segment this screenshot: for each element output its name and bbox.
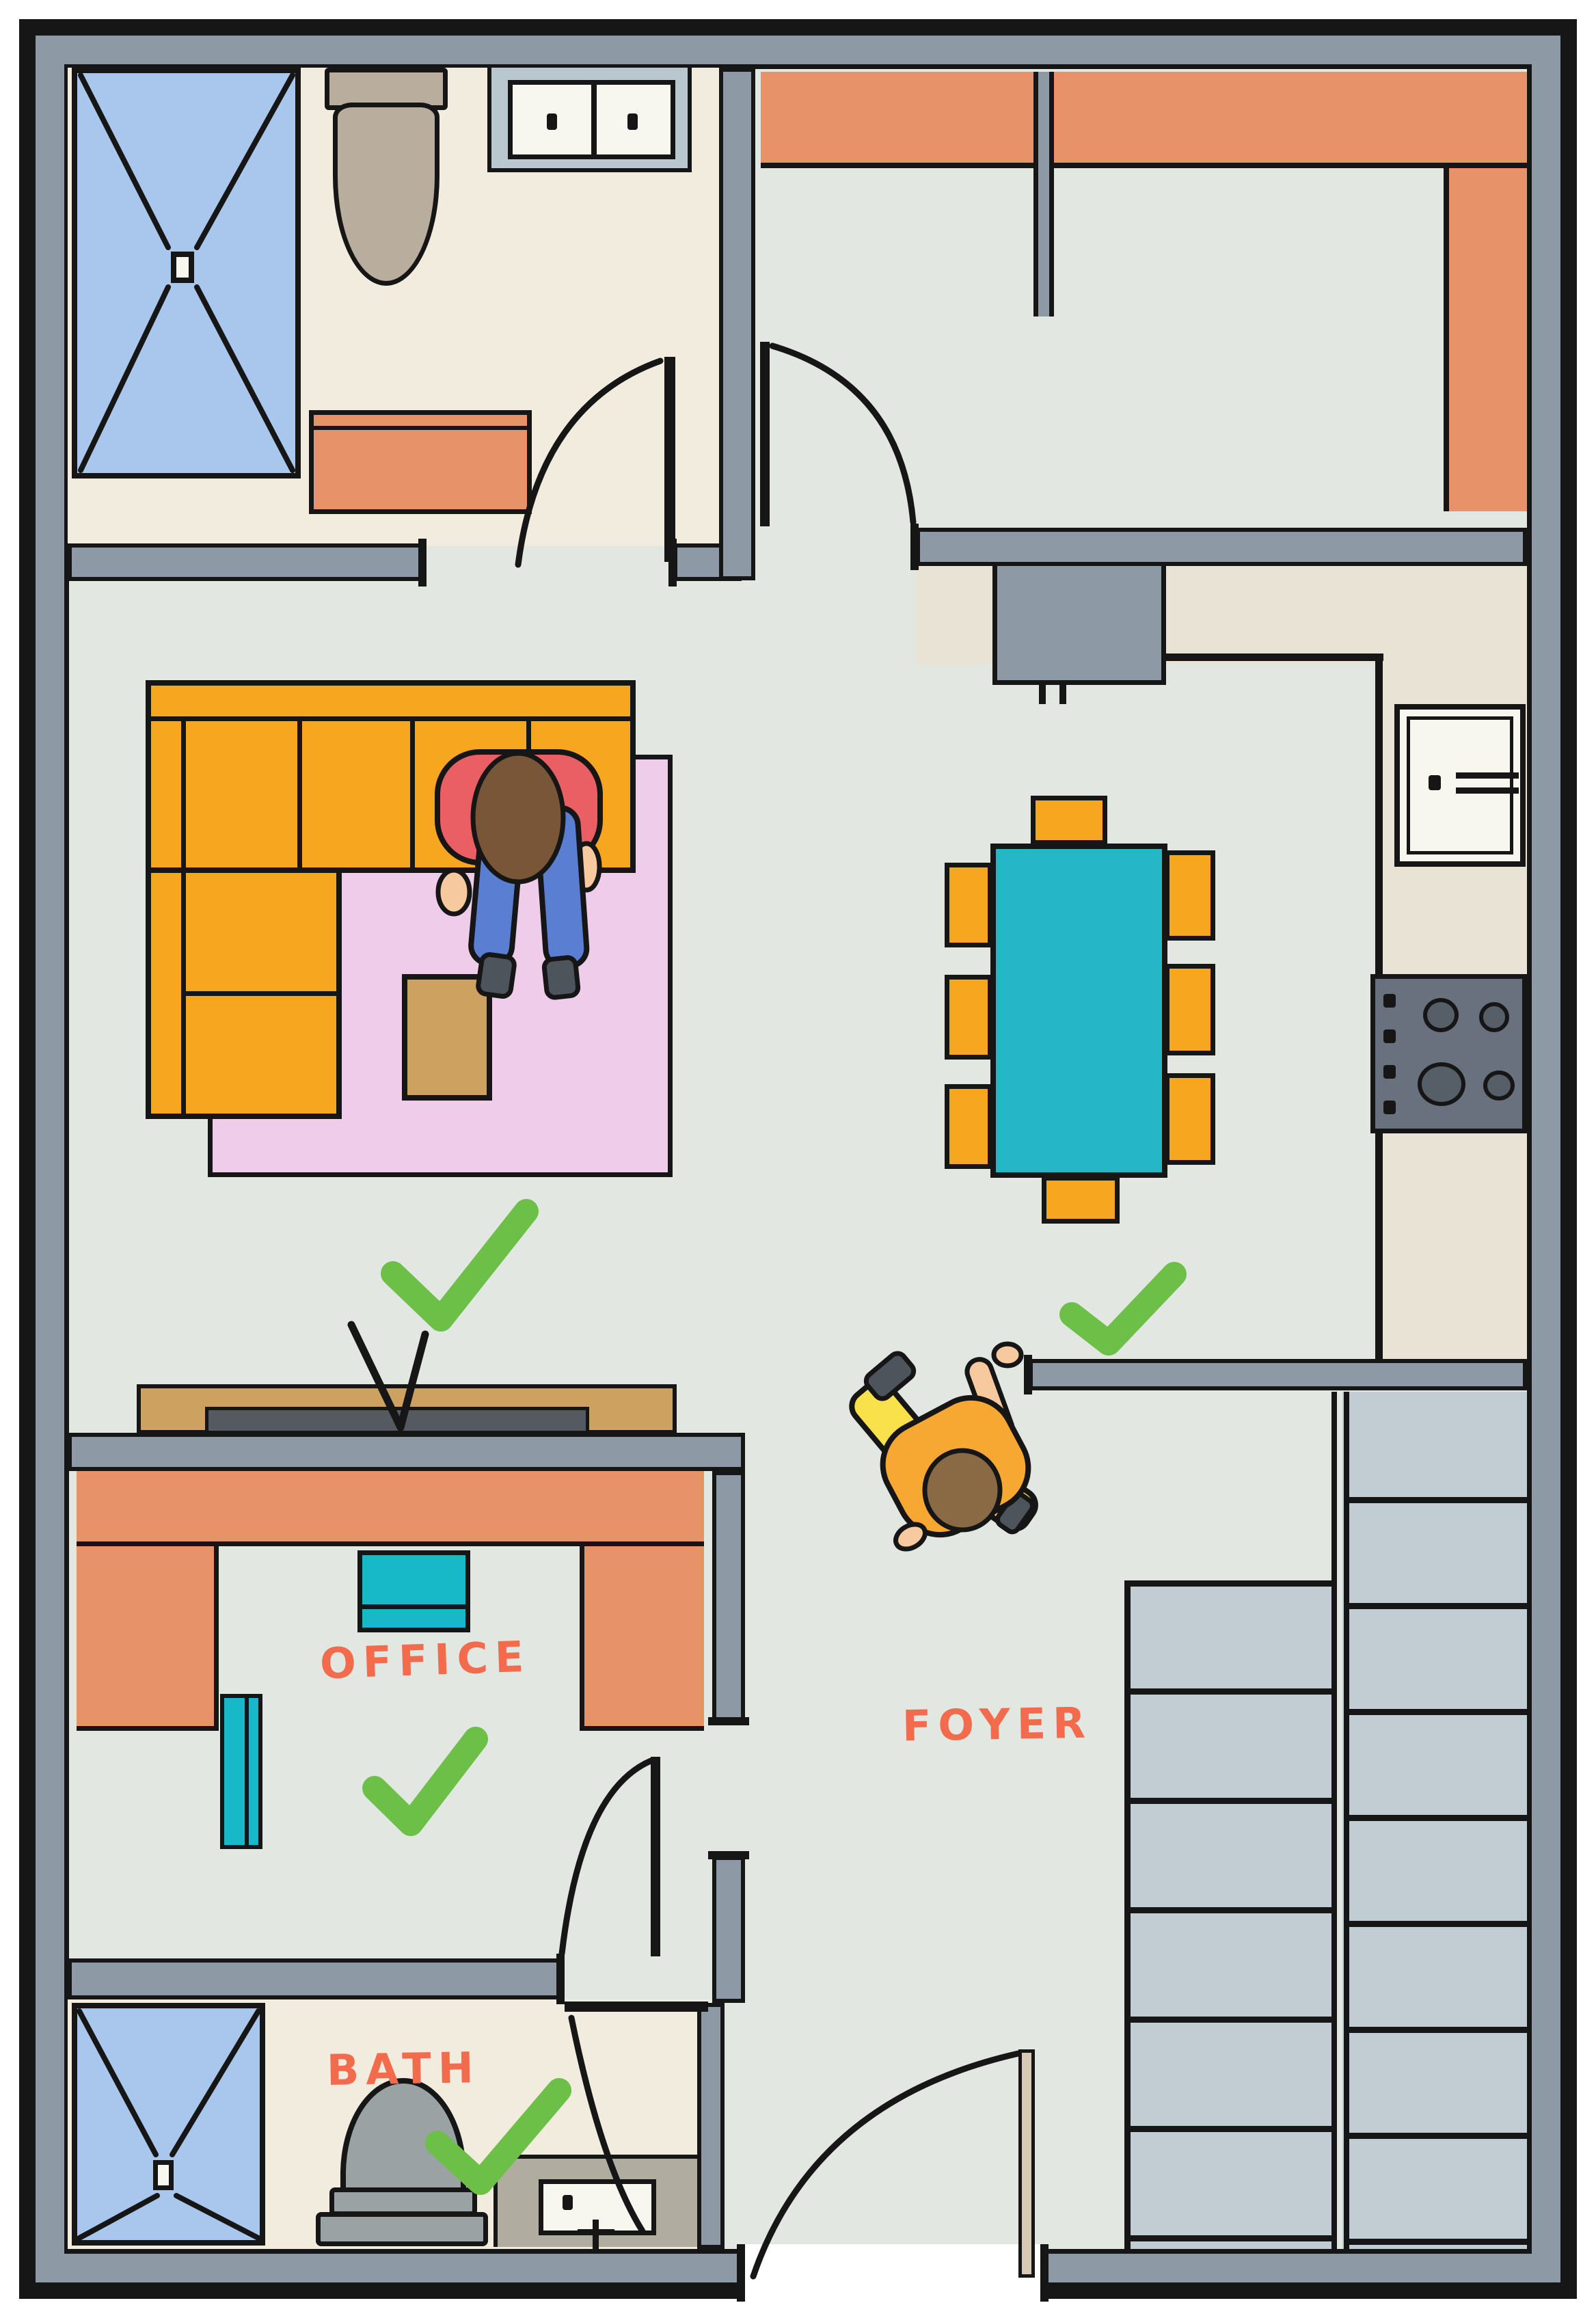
toilet-tank-bottom [316, 2212, 488, 2246]
shower-drain [171, 252, 194, 283]
dining-chair [1042, 1176, 1120, 1224]
front-door-leaf [1018, 2049, 1035, 2278]
stove-burner [1418, 1062, 1465, 1106]
sofa-cushion-divider [297, 716, 302, 868]
sink-drain [627, 113, 638, 130]
stair-tread [1131, 2017, 1331, 2023]
office-side-chair [220, 1694, 262, 1849]
sofa-arm-line [181, 716, 186, 1114]
sink-drain [1429, 775, 1441, 790]
wall-cap [556, 1954, 565, 2004]
dining-chair [1165, 1073, 1215, 1165]
stove-knob [1383, 994, 1396, 1008]
door-jamb [1040, 2244, 1049, 2302]
vanity-double-sink [508, 80, 675, 159]
refrigerator-handle [1059, 684, 1066, 704]
bath-dresser [309, 410, 532, 514]
wall-closetroom-south [916, 528, 1527, 566]
stairs-divider-a [1331, 1392, 1337, 2249]
dining-chair [1165, 964, 1215, 1055]
bathroom-door-leaf [664, 357, 675, 562]
stairs-divider-b [1344, 1392, 1349, 2249]
stair-tread [1131, 1907, 1331, 1913]
stair-tread [1349, 1603, 1527, 1609]
stair-tread [1349, 1497, 1527, 1503]
stair-tread [1349, 1921, 1527, 1927]
stairs-left-top-edge [1124, 1580, 1333, 1587]
dining-chair [945, 975, 992, 1060]
wall-bath-east [697, 2003, 725, 2249]
front-door-opening [742, 2244, 1047, 2318]
sink-divider [591, 85, 597, 154]
stove-burner [1483, 1070, 1515, 1101]
office-desk-top [77, 1471, 704, 1546]
sink-faucet [1456, 772, 1519, 779]
shower-drain [153, 2160, 174, 2190]
closet-right-band [1444, 168, 1527, 511]
bath-label: BATH [326, 2043, 481, 2095]
kitchen-sink [1394, 704, 1526, 867]
counter-edge-horizontal [1162, 653, 1383, 661]
floor-plan: OFFICE BATH FOYER [0, 0, 1596, 2318]
stair-tread [1131, 2235, 1331, 2241]
stair-tread [1131, 1688, 1331, 1695]
stove-burner [1423, 998, 1459, 1032]
office-desk-right [580, 1546, 704, 1731]
tv [205, 1407, 589, 1434]
chair-line [362, 1604, 465, 1609]
wall-bathroom-east [719, 68, 755, 580]
wall-cap [910, 524, 919, 570]
office-label: OFFICE [319, 1632, 532, 1689]
dining-chair [1165, 850, 1215, 941]
dining-chair [945, 1084, 992, 1169]
wall-cap [418, 539, 427, 587]
kitchen-sink-inner [1407, 716, 1513, 854]
sofa-cushion-divider [181, 991, 337, 996]
stair-tread [1131, 2126, 1331, 2132]
sofa-cushion-divider [410, 716, 415, 868]
wall-cap [708, 1717, 749, 1725]
office-door-leaf [651, 1757, 660, 1956]
sink-drain [547, 113, 557, 130]
stove-knob [1383, 1029, 1396, 1043]
dresser-top-line [314, 426, 527, 430]
dining-table [990, 844, 1167, 1178]
foyer-label: FOYER [902, 1698, 1092, 1751]
door-jamb [737, 2244, 745, 2302]
stair-tread [1349, 2027, 1527, 2033]
stove-knob [1383, 1101, 1396, 1114]
wall-foyer-west-mid [712, 1856, 745, 2003]
office-chair [357, 1550, 470, 1632]
stairs-left-flight [1124, 1580, 1333, 2249]
chair-line [245, 1698, 249, 1845]
stove-burner [1479, 1002, 1509, 1032]
wall-cap [708, 1851, 749, 1859]
office-desk-left [77, 1546, 219, 1731]
stair-tread [1349, 1709, 1527, 1715]
wall-stair-stub [1029, 1359, 1527, 1390]
wall-office-bath [68, 1958, 562, 1999]
wall-foyer-west-upper [712, 1471, 745, 1723]
dining-chair [945, 863, 992, 947]
closet-partition [1033, 72, 1054, 316]
stair-tread [1131, 1798, 1331, 1804]
ottoman [402, 974, 492, 1101]
wall-office-north [68, 1433, 745, 1471]
sink-faucet [593, 2220, 599, 2250]
sofa-cushion-divider [526, 716, 531, 868]
sink-faucet [1456, 787, 1519, 794]
closet-top-band [761, 72, 1527, 168]
stairs-left-edge [1124, 1580, 1131, 2249]
bath-door-leaf [565, 2002, 708, 2012]
stair-tread [1349, 2239, 1527, 2245]
stove [1370, 974, 1527, 1133]
sofa-body [146, 680, 636, 873]
wall-bathroom-south [68, 543, 424, 581]
shower-bottom [72, 2003, 265, 2246]
sink-faucet [578, 2229, 614, 2235]
closetroom-door-leaf [760, 342, 770, 526]
dining-chair [1031, 796, 1107, 845]
vanity-sink-bottom [539, 2179, 656, 2235]
stair-tread [1349, 2133, 1527, 2139]
stove-knob [1383, 1065, 1396, 1079]
wall-cap [1024, 1355, 1032, 1394]
sofa-back-line [151, 716, 630, 721]
sink-drain [563, 2195, 573, 2210]
refrigerator-handle [1039, 684, 1046, 704]
stair-tread [1349, 1815, 1527, 1821]
